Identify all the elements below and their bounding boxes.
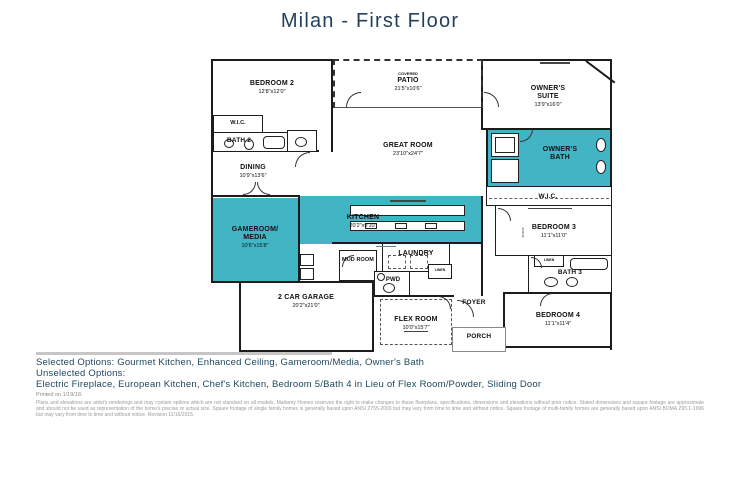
room-dims: 13'9"x16'0": [520, 102, 576, 108]
room-name: OWNER'S BATH: [532, 146, 588, 162]
printed-date: Printed on 1/19/18.: [36, 392, 82, 398]
room-name: FLEX ROOM: [382, 316, 450, 324]
room-name: BEDROOM 3: [516, 224, 592, 232]
room-dims: 23'10"x24'7": [363, 151, 453, 157]
door-arc: [257, 182, 270, 195]
label-linen-hall: LINEN: [430, 268, 450, 272]
room-dims: 20'2"x9'10": [330, 223, 396, 229]
room-name: PATIO: [368, 77, 448, 85]
wall-segment: [211, 59, 213, 283]
options-block: Selected Options: Gourmet Kitchen, Enhan…: [36, 357, 716, 390]
door-arc: [438, 296, 451, 309]
door-arc: [243, 182, 256, 195]
room-dims: 12'8"x12'0": [232, 89, 312, 95]
label-foyer: FOYER: [452, 299, 496, 306]
room-name: BEDROOM 2: [232, 80, 312, 88]
door-arc: [484, 92, 499, 107]
label-bath3: BATH 3: [548, 269, 592, 276]
room-name: 2 CAR GARAGE: [266, 294, 346, 302]
tiny-text-blob: [528, 208, 572, 209]
toilet-fixture: [566, 277, 578, 287]
driveway-line: [36, 352, 332, 355]
label-kitchen: KITCHEN 20'2"x9'10": [330, 214, 396, 229]
wall-segment: [481, 196, 483, 296]
tiny-text-blob: [390, 200, 426, 202]
room-name: KITCHEN: [330, 214, 396, 222]
toilet-fixture: [295, 137, 307, 147]
label-porch: PORCH: [456, 333, 502, 340]
room-dims: 20'2"x21'0": [266, 303, 346, 309]
shower-inner: [495, 137, 515, 153]
room-dims: 21'5"x10'6": [368, 86, 448, 92]
tub-fixture: [491, 159, 519, 183]
label-owners-suite: OWNER'S SUITE 13'9"x16'0": [520, 85, 576, 108]
label-bedroom3: BEDROOM 3 11'1"x11'0": [516, 224, 592, 239]
label-dining: DINING 10'9"x13'6": [218, 164, 288, 179]
unselected-options-heading: Unselected Options:: [36, 368, 716, 379]
wall-segment: [483, 59, 612, 61]
unselected-options-line: Electric Fireplace, European Kitchen, Ch…: [36, 379, 716, 390]
door-arc: [295, 152, 310, 167]
room-dims: 11'1"x11'0": [516, 233, 592, 239]
closet-box: [300, 254, 314, 266]
room-dims: 10'6"x15'8": [226, 243, 284, 249]
room-dims: 11'1"x11'4": [520, 321, 596, 327]
sink-fixture: [544, 277, 558, 287]
label-bedroom2: BEDROOM 2 12'8"x12'0": [232, 80, 312, 95]
toilet-fixture: [383, 283, 395, 293]
selected-options-line: Selected Options: Gourmet Kitchen, Enhan…: [36, 357, 716, 368]
label-bedroom4: BEDROOM 4 11'1"x11'4": [520, 312, 596, 327]
room-name: OWNER'S SUITE: [520, 85, 576, 101]
label-wic2: W.I.C.: [218, 120, 258, 126]
label-owners-bath: OWNER'S BATH: [532, 146, 588, 162]
label-garage: 2 CAR GARAGE 20'2"x21'0": [266, 294, 346, 309]
room-garage: [239, 281, 374, 352]
label-linen-bath3: LINEN: [537, 258, 561, 262]
wall-segment: [211, 59, 333, 61]
label-laundry: LAUNDRY: [386, 250, 446, 258]
kitchen-appliance: [425, 223, 437, 229]
room-name: DINING: [218, 164, 288, 172]
room-name: BEDROOM 4: [520, 312, 596, 320]
wall-segment: [211, 195, 300, 197]
page-title: Milan - First Floor: [0, 10, 740, 33]
sink-fixture: [596, 160, 606, 174]
ceiling-note-blob: [540, 62, 570, 64]
room-dims: 10'0"x15'7": [382, 325, 450, 331]
label-bath2: BATH 2: [216, 137, 262, 144]
label-gameroom: GAMEROOM/ MEDIA 10'6"x15'8": [226, 226, 284, 249]
label-flex-room: FLEX ROOM 10'0"x15'7": [382, 316, 450, 331]
bathtub-fixture: [263, 136, 285, 149]
closet-box: [300, 268, 314, 280]
label-owners-wic: W.I.C.: [525, 193, 571, 200]
room-name: GREAT ROOM: [363, 142, 453, 150]
room-name: GAMEROOM/ MEDIA: [226, 226, 284, 242]
room-dims: 10'9"x13'6": [218, 173, 288, 179]
label-great-room: GREAT ROOM 23'10"x24'7": [363, 142, 453, 157]
label-mud-room: MUD ROOM: [342, 257, 374, 263]
disclaimer-text: Plans and elevations are artist's render…: [36, 401, 704, 418]
tiny-text-blob: [376, 246, 396, 247]
floorplan-page: Milan - First Floor: [0, 0, 740, 480]
kitchen-appliance: [395, 223, 407, 229]
label-patio: COVERED PATIO 21'5"x10'6": [368, 72, 448, 92]
label-pwd: PWD: [380, 277, 406, 284]
sink-fixture: [596, 138, 606, 152]
